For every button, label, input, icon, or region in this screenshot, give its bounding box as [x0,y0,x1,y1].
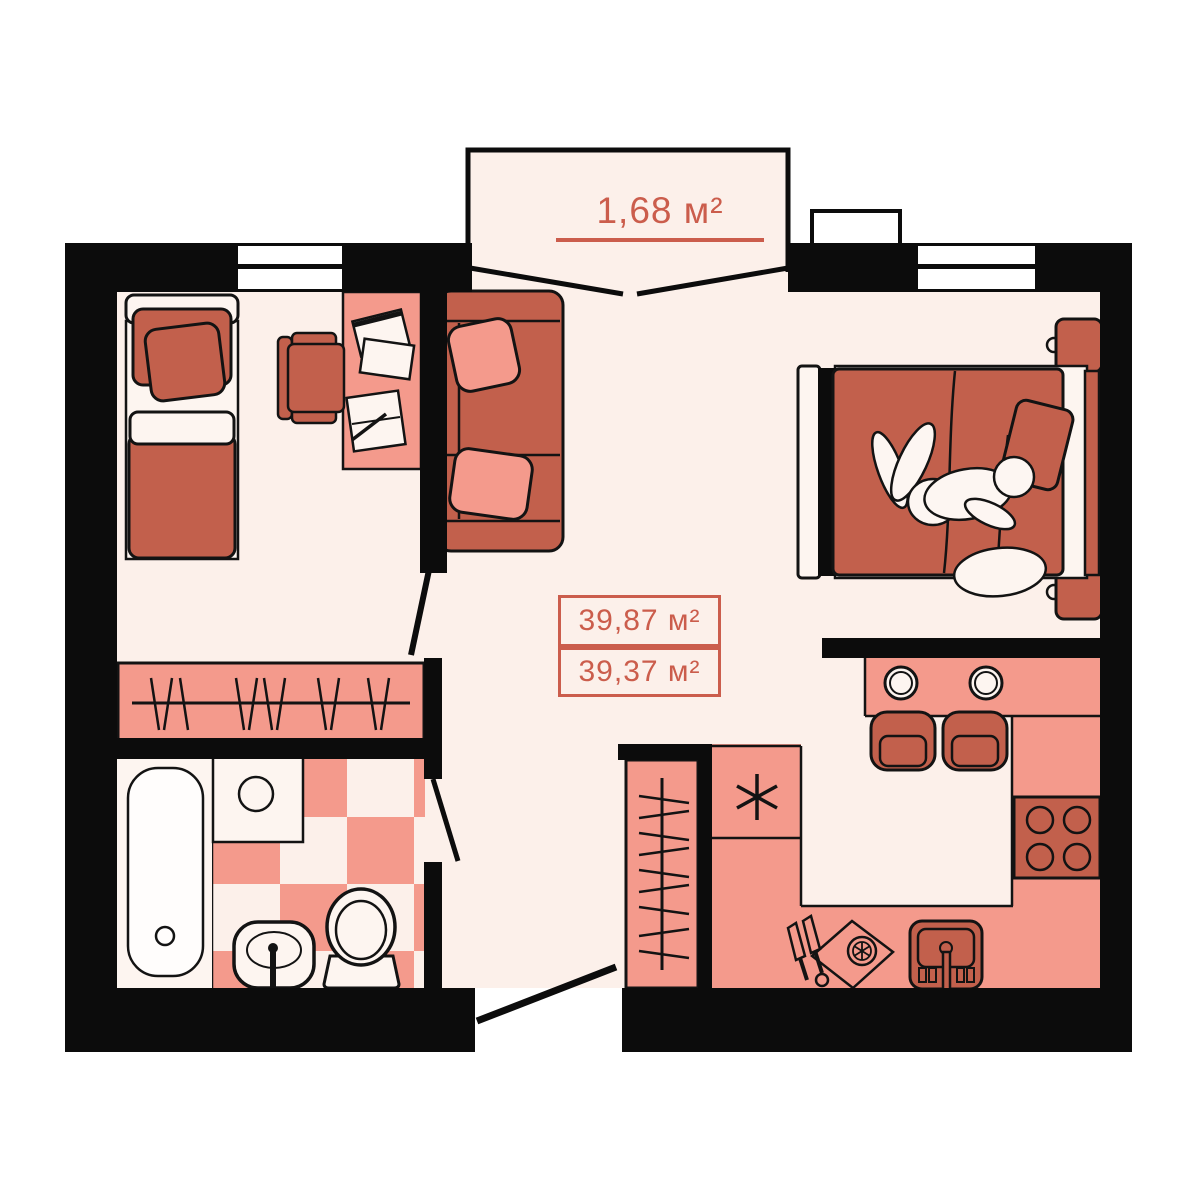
wall-bathroom-top [65,738,442,759]
window-left [238,243,342,292]
washer [213,757,303,842]
wardrobe-vertical [626,760,698,988]
wardrobe-hall [118,663,424,740]
floor-plan-canvas: 1,68 м² 39,87 м² 39,37 м² [0,0,1200,1200]
nightstand-1 [1056,319,1102,372]
sofa-pillow-1 [446,316,522,394]
wall-kitchen-top [822,638,1132,658]
chair-seat [288,344,344,412]
bed-pillow-small [144,322,226,402]
bed-blanket [129,434,235,558]
living-room [437,291,563,551]
wall-bedroom-divider [420,292,447,573]
total-area-label: 39,87 м² [558,595,721,647]
sink-faucet [270,950,276,988]
balcony-area-label: 1,68 м² [556,190,764,242]
paper-2 [360,339,414,380]
wall-bathroom-right-lower [424,862,442,988]
counter-left-column [712,744,801,906]
double-bed-footboard [798,366,820,578]
wall-wardrobe-top [618,744,712,760]
wall-wardrobe-right [698,744,712,990]
wall-bottom-right [622,988,1132,1052]
entry-opening [475,988,622,1052]
exterior-ledge [812,211,900,245]
living-area-label: 39,37 м² [558,647,721,697]
single-bed [126,295,238,559]
window-right [918,243,1035,292]
bed-sheet-fold [130,412,234,444]
wall-left [65,243,117,1052]
sofa-pillow-2 [448,447,534,521]
wall-bathroom-right-upper [424,658,442,779]
person-head [994,457,1034,497]
double-bed-headboard [1085,371,1099,575]
wall-bottom-left [65,988,475,1052]
